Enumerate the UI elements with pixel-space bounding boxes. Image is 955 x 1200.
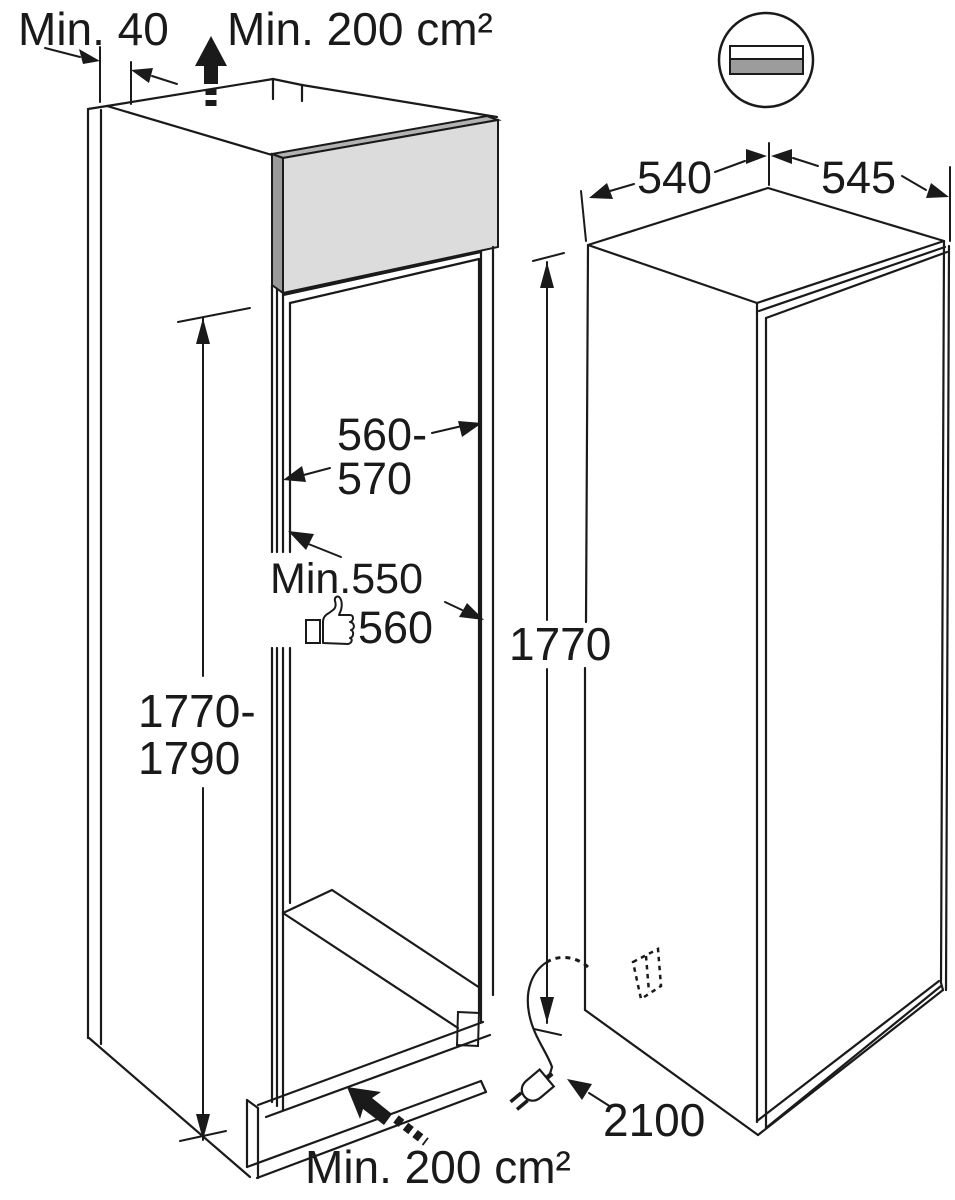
appliance-depth-label: 540 — [637, 152, 712, 203]
vent-grille-icon — [719, 13, 813, 107]
side-panel — [88, 79, 273, 1177]
thumbs-up-icon — [306, 597, 354, 644]
appliance-width-label: 545 — [821, 152, 896, 203]
niche-width-label-2: 570 — [337, 453, 412, 504]
appliance-height-dimension: 1770 — [509, 253, 611, 1035]
bottom-vent-label: Min. 200 cm² — [305, 1141, 571, 1193]
appliance-height-label: 1770 — [509, 618, 611, 670]
niche-opening — [272, 247, 493, 1110]
appliance-drawing: 540 545 1770 — [507, 143, 950, 1146]
vent-filler-panel — [272, 116, 498, 293]
rear-gap-dimension: Min. 40 — [18, 3, 177, 104]
niche-height-label-2: 1790 — [138, 732, 240, 784]
power-cord: 2100 — [507, 949, 706, 1146]
cord-length-label: 2100 — [603, 1094, 705, 1146]
rear-wall-notch — [273, 79, 497, 117]
niche-drawing: Min. 40 Min. 200 cm² 560- 570 Min.550 56… — [18, 3, 571, 1193]
appliance-top-face — [588, 188, 944, 303]
top-vent-label: Min. 200 cm² — [227, 3, 493, 55]
niche-height-dimension: 1770- 1790 — [138, 308, 256, 1141]
niche-depth-dimension: Min.550 560 — [270, 531, 484, 653]
installation-diagram: Min. 40 Min. 200 cm² 560- 570 Min.550 56… — [0, 0, 955, 1200]
rear-gap-label: Min. 40 — [18, 3, 169, 55]
niche-width-dimension: 560- 570 — [283, 409, 482, 504]
niche-height-label-1: 1770- — [138, 685, 256, 737]
airflow-plinth-arrow-icon — [347, 1087, 426, 1142]
niche-floor — [283, 890, 480, 1046]
niche-depth-recommended-label: 560 — [358, 602, 433, 653]
niche-depth-min-label: Min.550 — [270, 555, 423, 603]
diagram-page: Min. 40 Min. 200 cm² 560- 570 Min.550 56… — [0, 0, 955, 1200]
airflow-up-arrow-icon — [195, 36, 227, 107]
socket-outline-icon — [633, 949, 661, 999]
